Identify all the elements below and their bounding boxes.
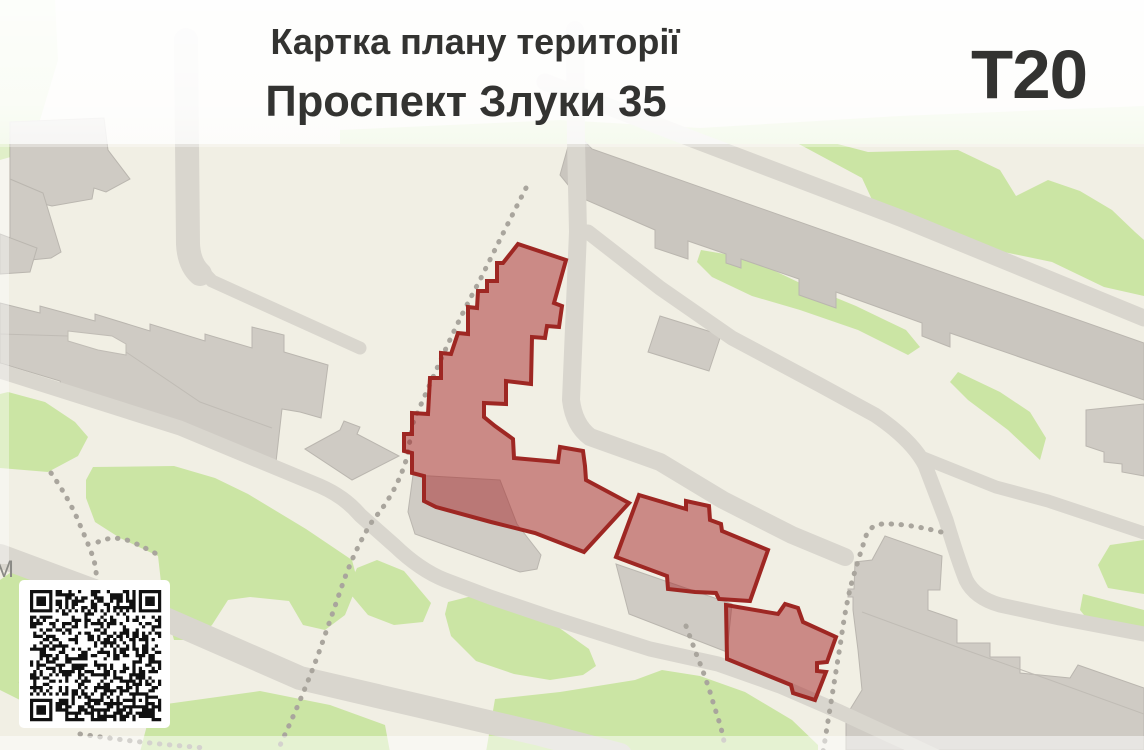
svg-text:Проспект Злуки 35: Проспект Злуки 35 — [265, 78, 666, 126]
svg-text:Картка плану території: Картка плану території — [270, 21, 680, 62]
svg-text:М: М — [0, 556, 14, 583]
svg-text:Т20: Т20 — [971, 36, 1087, 113]
